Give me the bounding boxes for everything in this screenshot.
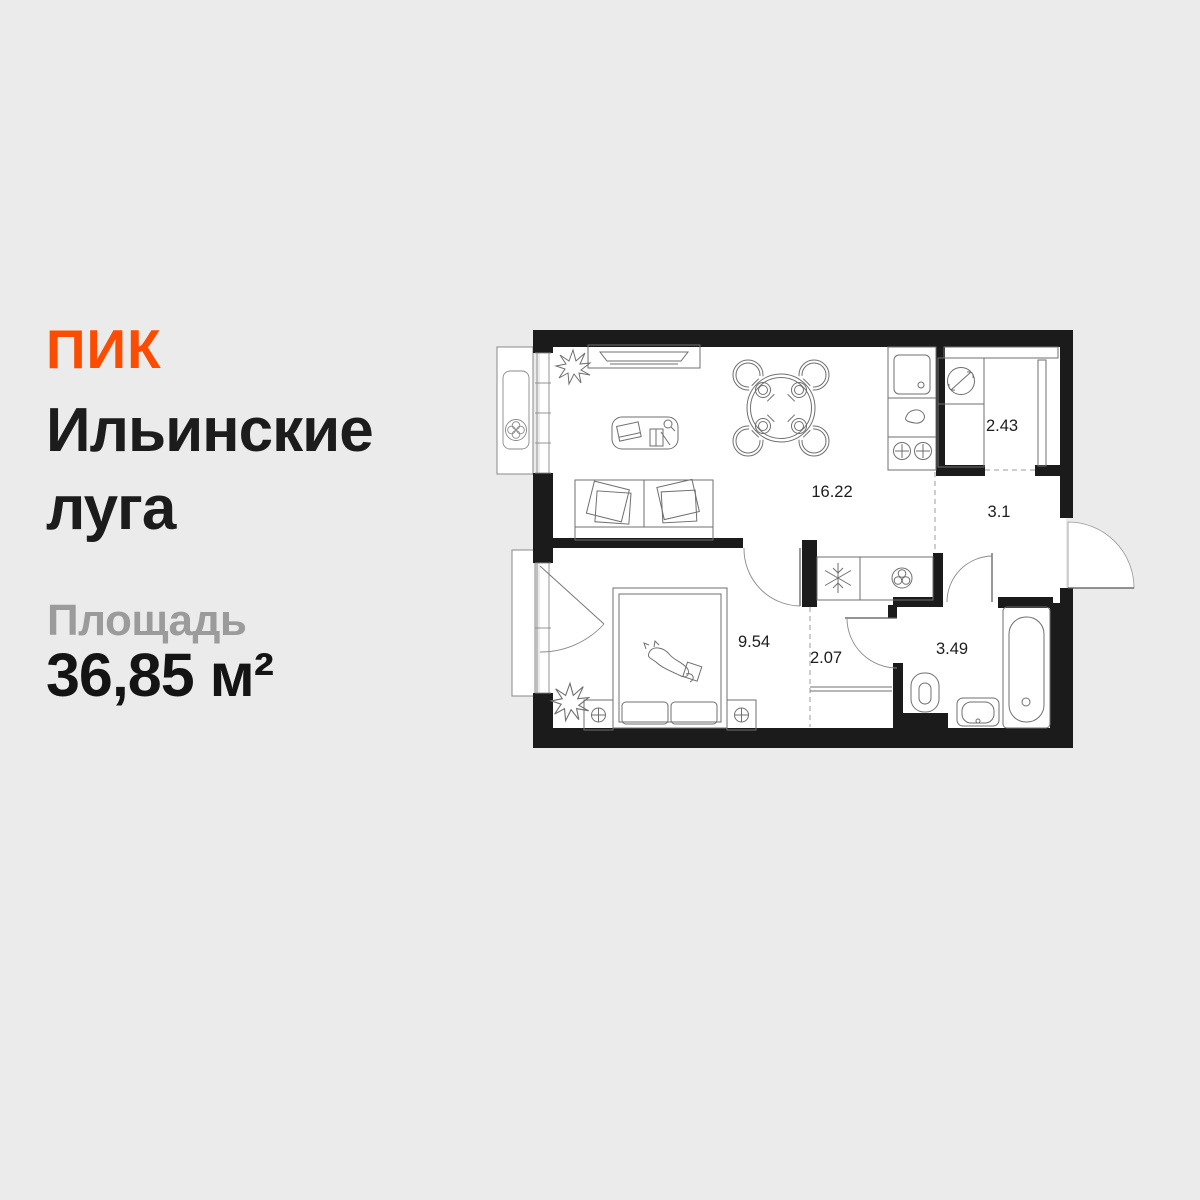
project-title-line2: луга xyxy=(46,474,175,543)
balcony-bedroom xyxy=(512,550,535,696)
room-label-storage: 2.43 xyxy=(986,417,1018,435)
room-label-hallway: 3.1 xyxy=(988,503,1011,521)
area-label: Площадь xyxy=(47,596,246,646)
entrance-door-swing xyxy=(1068,522,1134,588)
room-label-wardrobe: 2.07 xyxy=(810,649,842,667)
kitchen-counter xyxy=(888,347,936,470)
balcony-living xyxy=(497,347,533,474)
lamp-icon xyxy=(592,708,606,722)
pik-logo: ПИК xyxy=(46,317,162,381)
room-label-bathroom: 3.49 xyxy=(936,640,968,658)
lamp-icon xyxy=(735,708,749,722)
project-title-line1: Ильинские xyxy=(46,396,373,465)
room-label-bedroom: 9.54 xyxy=(738,633,770,651)
room-label-living-kitchen: 16.22 xyxy=(811,483,852,501)
apartment-card: ПИК Ильинские луга Площадь 36,85 м² xyxy=(0,0,1200,1200)
project-title: Ильинские луга xyxy=(46,392,373,548)
floorplan: 16.22 2.43 3.1 9.54 2.07 3.49 xyxy=(480,315,1150,765)
area-value: 36,85 м² xyxy=(46,640,273,710)
